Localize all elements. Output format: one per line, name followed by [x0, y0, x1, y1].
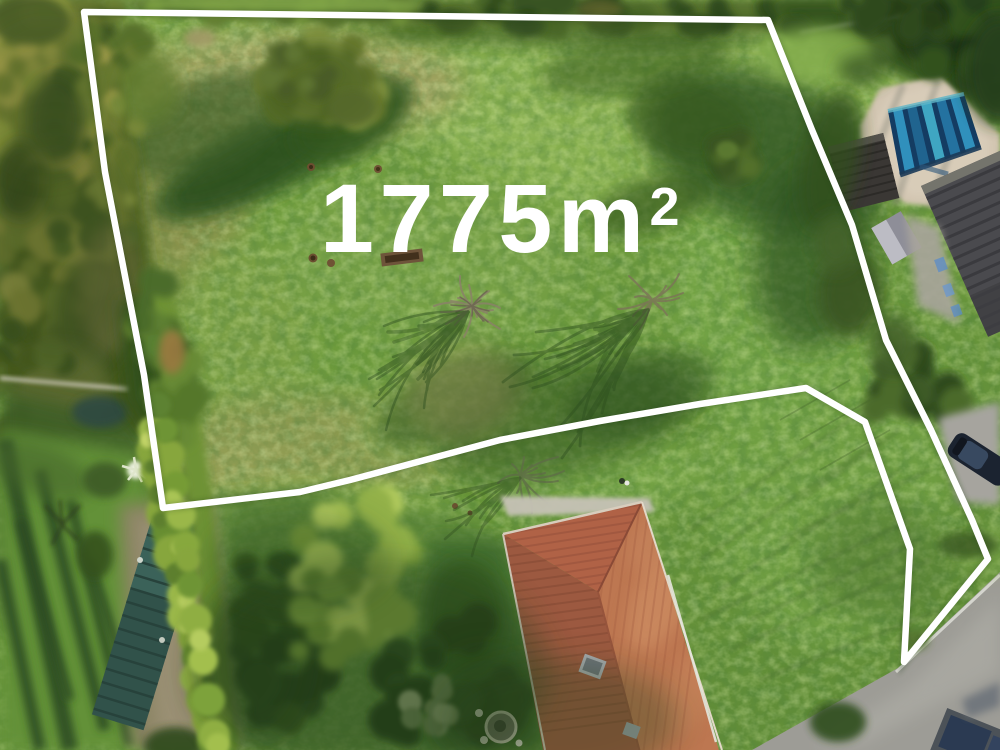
svg-text:1775m2: 1775m2 — [320, 164, 685, 273]
